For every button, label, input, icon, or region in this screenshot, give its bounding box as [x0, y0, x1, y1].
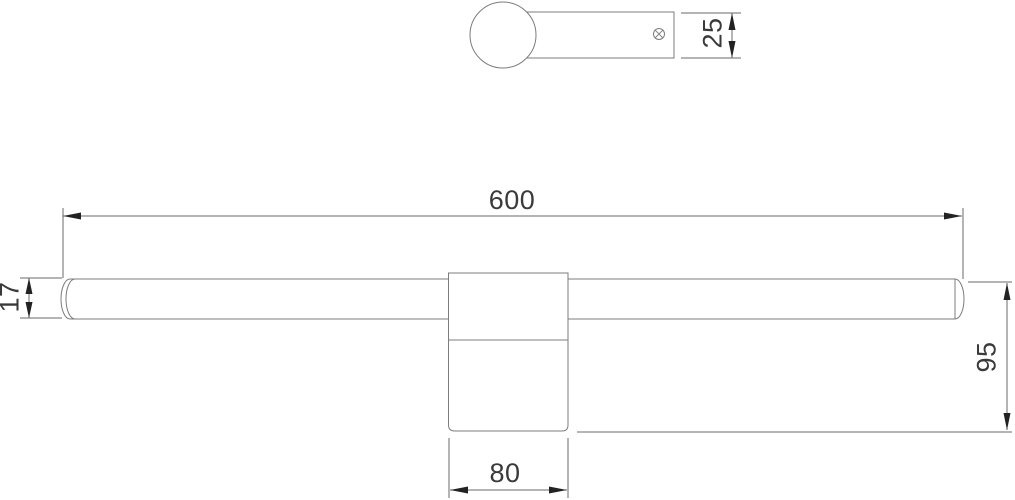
dimension-depth: 25 [681, 13, 741, 58]
dimension-overall-height: 95 [577, 282, 1012, 432]
bar-left-cap-inner [66, 279, 75, 319]
front-view: 600 17 [0, 185, 1012, 498]
dimension-mount-width: 80 [449, 438, 568, 498]
lamp-head-circle [470, 2, 536, 68]
arrowhead-up [729, 13, 736, 30]
arrowhead-left [63, 213, 81, 220]
arrowhead-down [729, 41, 736, 58]
dimension-overall-width: 600 [63, 185, 963, 279]
dimension-bar-diameter: 17 [0, 278, 62, 318]
mount-plate-outline [527, 12, 674, 58]
dimension-label-mount-width: 80 [489, 458, 520, 488]
lamp-dimension-drawing: 25 600 [0, 0, 1015, 500]
arrowhead-up [1004, 283, 1011, 300]
dimension-label-overall-width: 600 [489, 185, 536, 215]
dimension-label-bar-diameter: 17 [0, 281, 24, 312]
arrowhead-down [26, 302, 33, 318]
arrowhead-up [26, 278, 33, 294]
arrowhead-down [1004, 413, 1011, 430]
arrowhead-left [450, 487, 468, 494]
dimension-label-overall-height: 95 [971, 341, 1001, 372]
top-view: 25 [470, 2, 741, 68]
bar-right-cap [955, 279, 964, 319]
technical-drawing-canvas: 25 600 [0, 0, 1015, 500]
arrowhead-right [549, 487, 567, 494]
mount-block-outline [449, 273, 569, 431]
arrowhead-right [944, 213, 962, 220]
dimension-label-depth: 25 [697, 17, 727, 48]
screw-cross-icon [654, 29, 665, 40]
mount-block [449, 273, 569, 431]
